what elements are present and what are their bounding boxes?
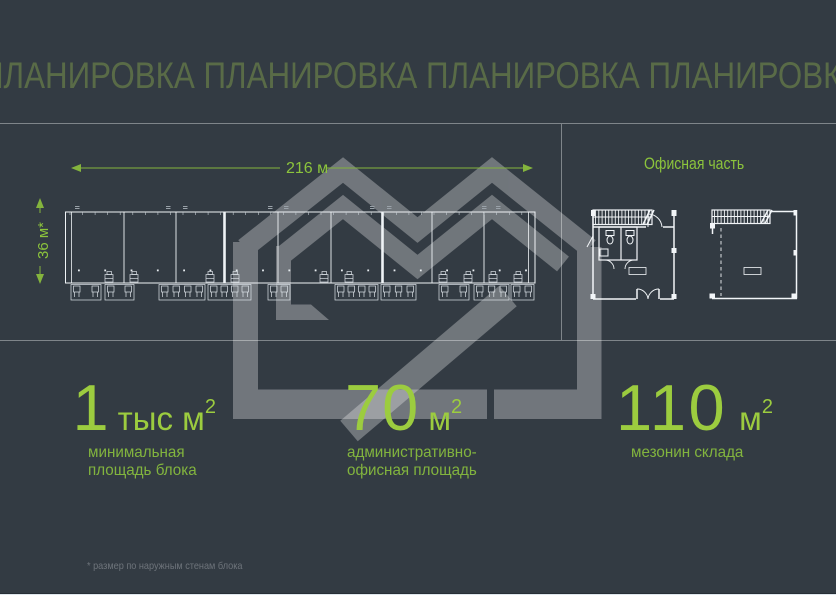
- svg-text:36 м*: 36 м*: [35, 222, 52, 259]
- svg-text:216 м: 216 м: [286, 160, 328, 177]
